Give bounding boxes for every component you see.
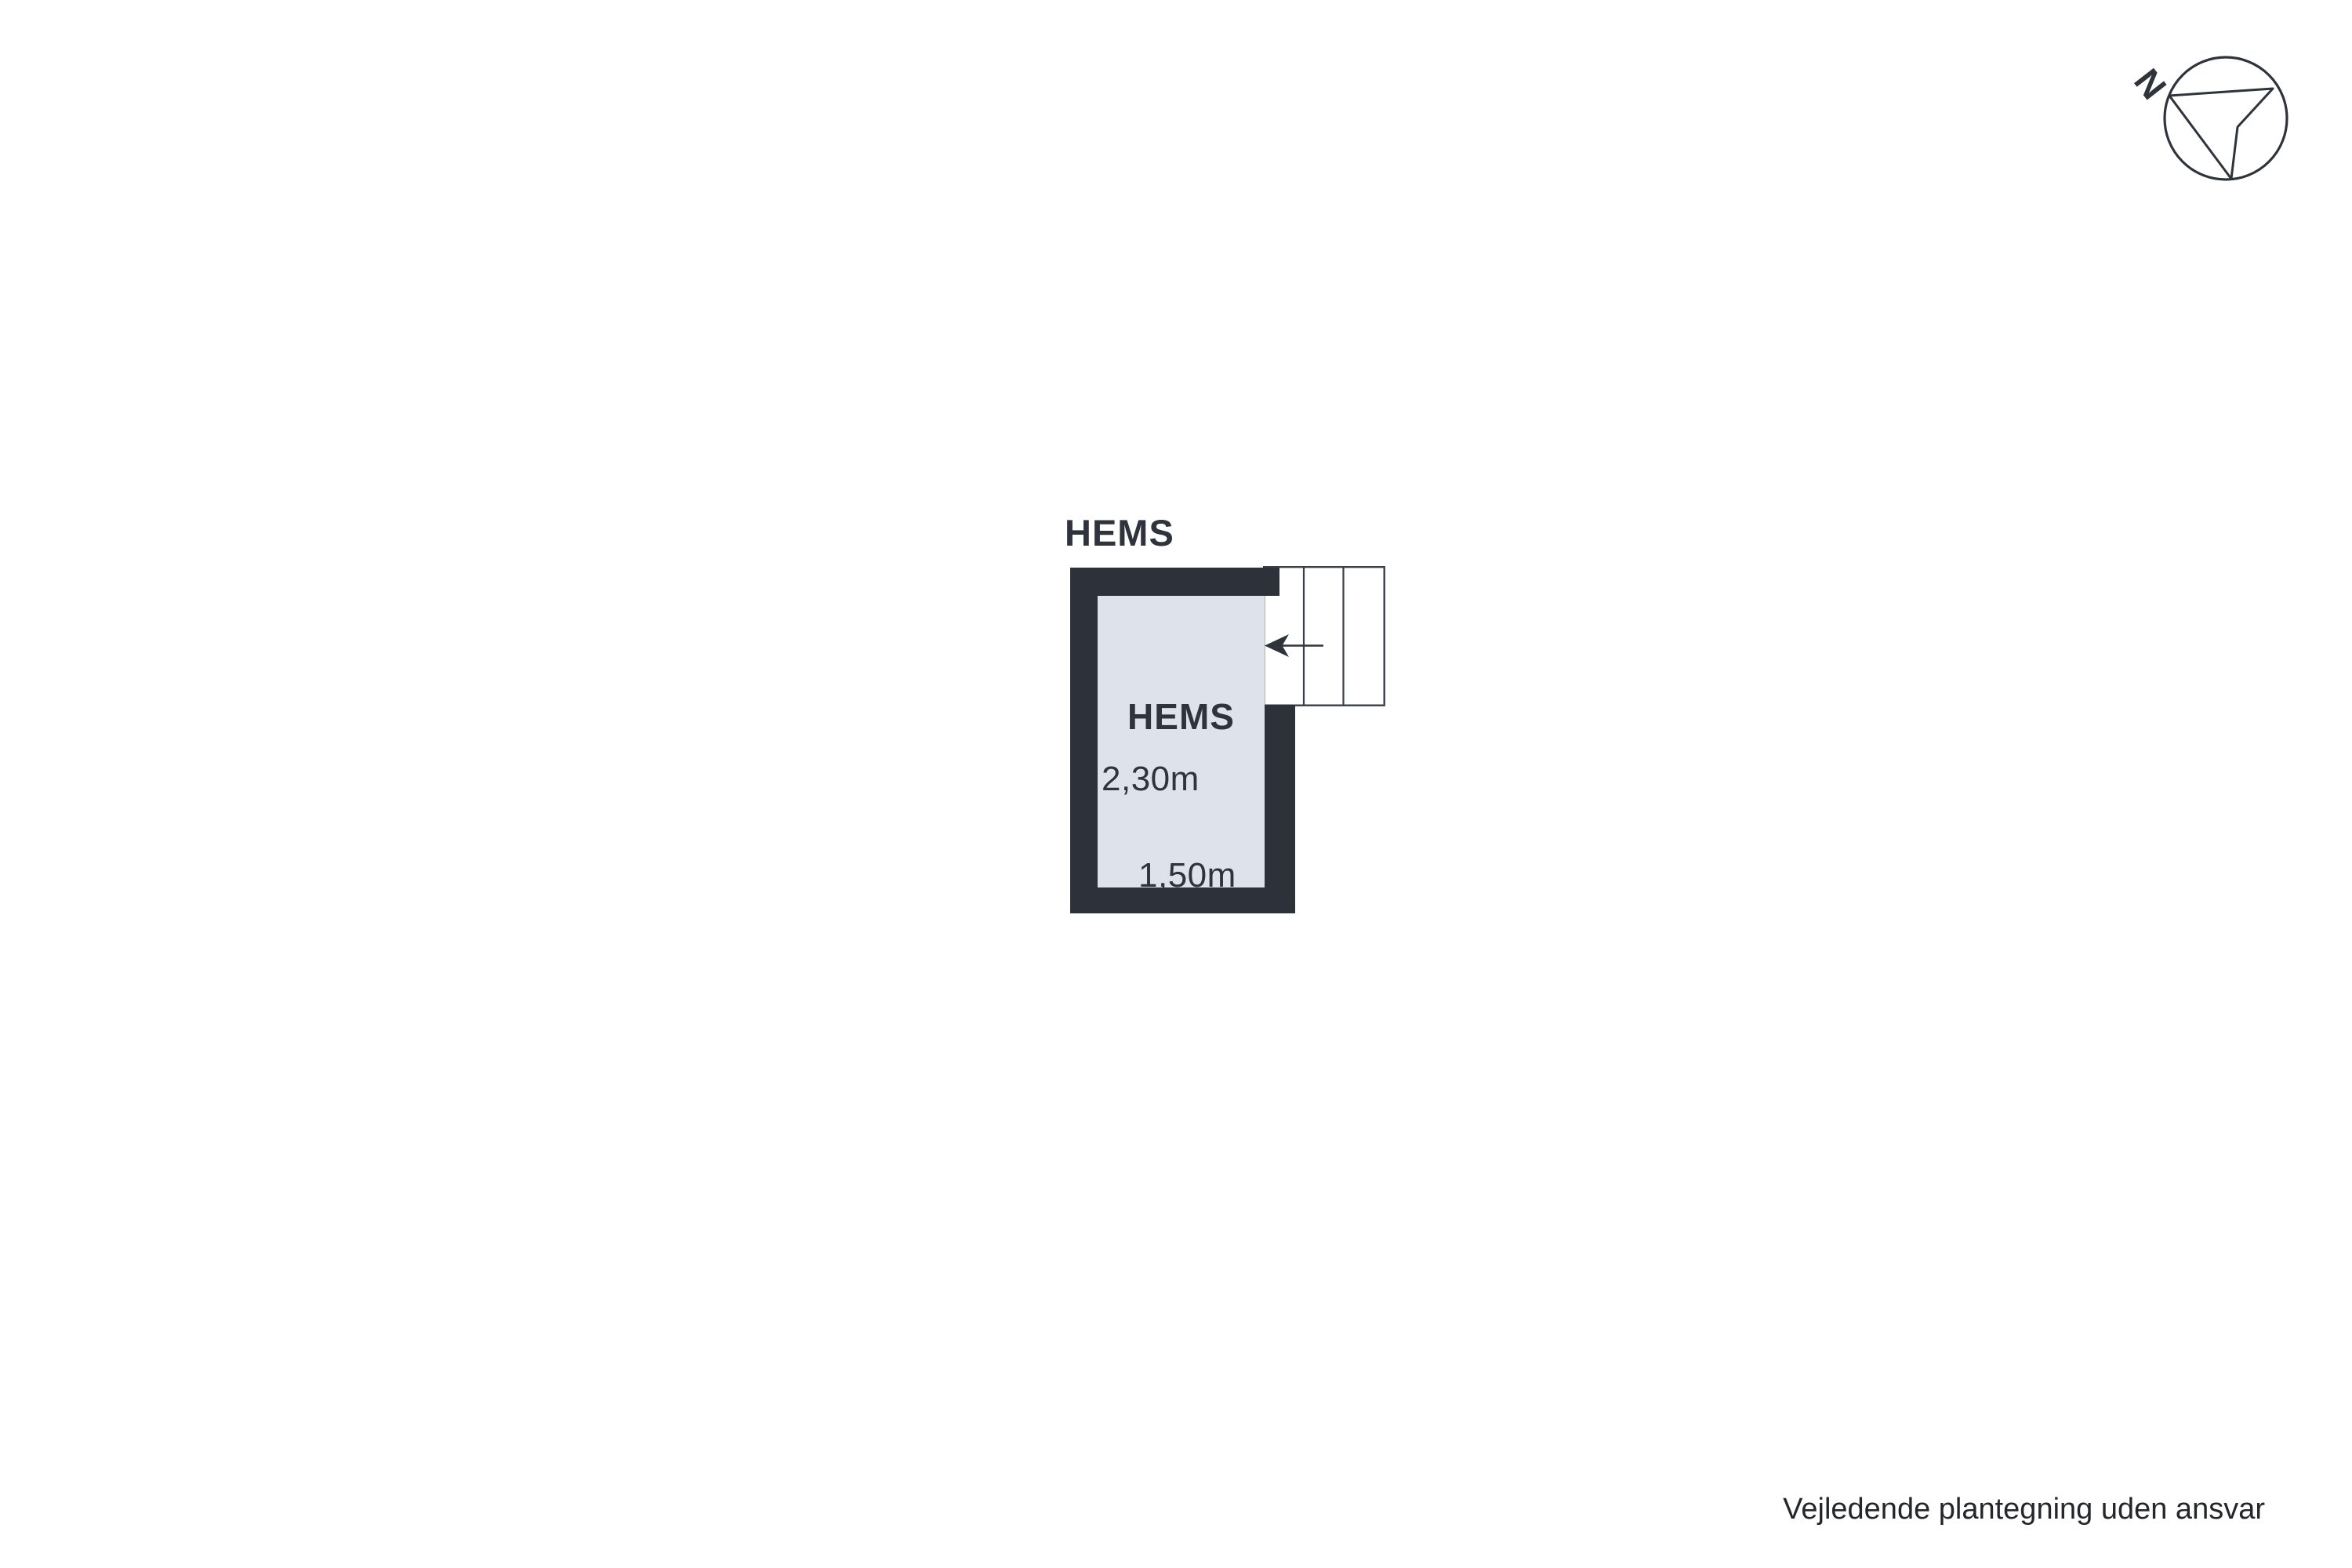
- disclaimer-text: Vejledende plantegning uden ansvar: [1783, 1492, 2265, 1528]
- compass-circle: [2165, 57, 2287, 180]
- wall-right: [1265, 705, 1295, 913]
- wall-left: [1070, 568, 1098, 913]
- room-name-label: HEMS: [1098, 699, 1265, 735]
- plan-title: HEMS: [1065, 514, 1174, 551]
- floor-plan: HEMS HEMS 2,30m 1,50m: [1065, 510, 1394, 917]
- stairs: [1262, 565, 1386, 708]
- compass-icon: N: [2117, 41, 2309, 194]
- ceiling-height-label: 2,30m: [1102, 762, 1200, 797]
- room-width-label: 1,50m: [1138, 858, 1236, 893]
- page: N HEMS HEMS 2,30m 1,50m Vejledende plant…: [0, 0, 2352, 1568]
- room-floor: [1098, 596, 1265, 887]
- wall-top: [1070, 568, 1279, 596]
- stairs-outline: [1264, 567, 1385, 706]
